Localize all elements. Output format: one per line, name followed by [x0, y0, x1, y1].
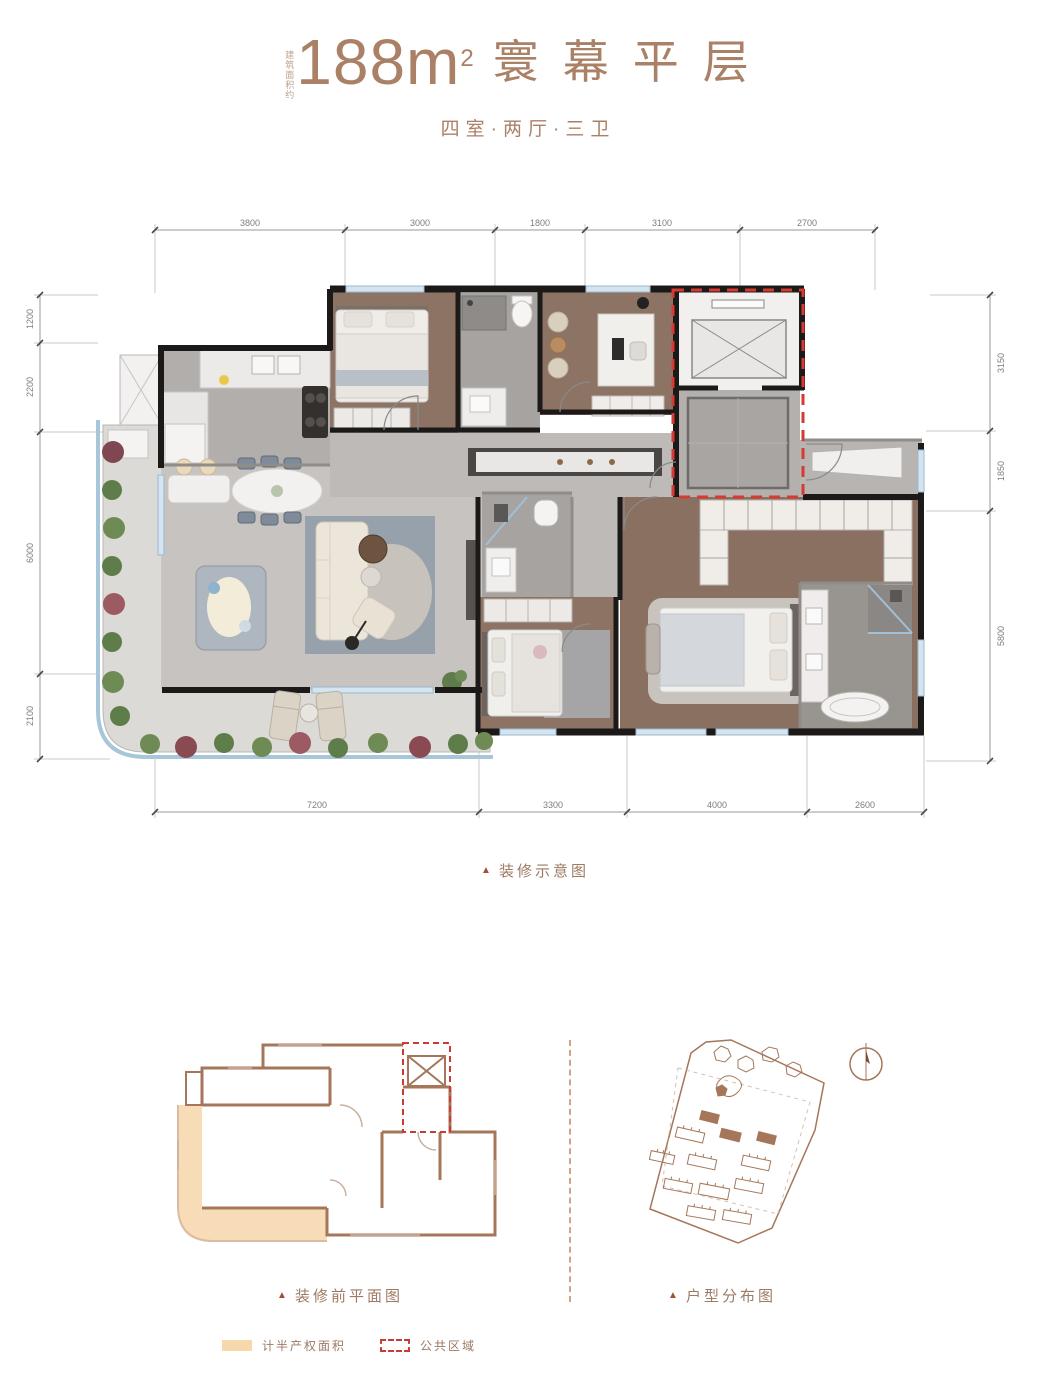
- site-plan: [649, 1040, 882, 1243]
- half-property-area: [178, 1105, 327, 1242]
- half-property-label: 计半产权面积: [262, 1337, 346, 1354]
- caption-triangle-icon: ▲: [277, 1290, 287, 1301]
- dimension-label: 7200: [307, 800, 327, 810]
- dimension-label: 5800: [996, 626, 1006, 646]
- dimension-label: 2100: [25, 706, 35, 726]
- plan-artwork: [0, 0, 1056, 1400]
- dimension-label: 1850: [996, 461, 1006, 481]
- site-plan-caption: ▲ 户型分布图: [668, 1285, 776, 1306]
- before-decoration-plan: [178, 1043, 495, 1242]
- dimension-label: 1200: [25, 309, 35, 329]
- bench: [646, 624, 660, 674]
- floor-plan-page: 建筑面积约 188m2 寰幕平层 四室·两厅·三卫 3800 3000 1800…: [0, 0, 1056, 1400]
- area-exponent: 2: [460, 45, 474, 72]
- page-subtitle: 四室·两厅·三卫: [0, 114, 1056, 141]
- elevator-icon-small: [408, 1056, 445, 1086]
- dimension-label: 3800: [240, 218, 260, 228]
- bedroom2: [482, 630, 610, 718]
- dimension-label: 4000: [707, 800, 727, 810]
- toilet: [512, 301, 532, 327]
- dimension-label: 2200: [25, 377, 35, 397]
- dimension-label: 2600: [855, 800, 875, 810]
- island-counter: [168, 475, 230, 503]
- compass-icon: [850, 1043, 882, 1080]
- area-value: 188m2: [296, 30, 474, 94]
- legend: 计半产权面积 公共区域: [222, 1337, 476, 1354]
- tv-console: [466, 540, 476, 620]
- main-plan-caption: ▲ 装修示意图: [481, 860, 589, 881]
- bathtub: [821, 692, 889, 722]
- area-prefix-label: 建筑面积约: [283, 44, 296, 106]
- dimension-label: 3100: [652, 218, 672, 228]
- caption-triangle-icon: ▲: [668, 1290, 678, 1301]
- main-floor-plan: [98, 286, 924, 758]
- corridor-console: [468, 448, 662, 476]
- dimension-label: 6000: [25, 543, 35, 563]
- header: 建筑面积约 188m2 寰幕平层 四室·两厅·三卫: [0, 30, 1056, 141]
- cooktop: [302, 386, 328, 438]
- dimension-label: 3150: [996, 353, 1006, 373]
- hall-floor: [572, 493, 620, 597]
- dimension-label: 3300: [543, 800, 563, 810]
- caption-triangle-icon: ▲: [481, 865, 491, 876]
- half-property-swatch: [222, 1340, 252, 1351]
- vanity: [800, 590, 828, 702]
- dimension-label: 1800: [530, 218, 550, 228]
- page-title: 寰幕平层: [493, 30, 773, 94]
- coffee-table: [359, 535, 387, 563]
- dashed-divider: [569, 1040, 571, 1302]
- dimension-label: 3000: [410, 218, 430, 228]
- fridge: [165, 424, 205, 463]
- dimension-label: 2700: [797, 218, 817, 228]
- before-plan-caption: ▲ 装修前平面图: [277, 1285, 403, 1306]
- public-area-label: 公共区域: [420, 1337, 476, 1354]
- public-area-swatch: [380, 1339, 410, 1352]
- toilet: [534, 500, 558, 526]
